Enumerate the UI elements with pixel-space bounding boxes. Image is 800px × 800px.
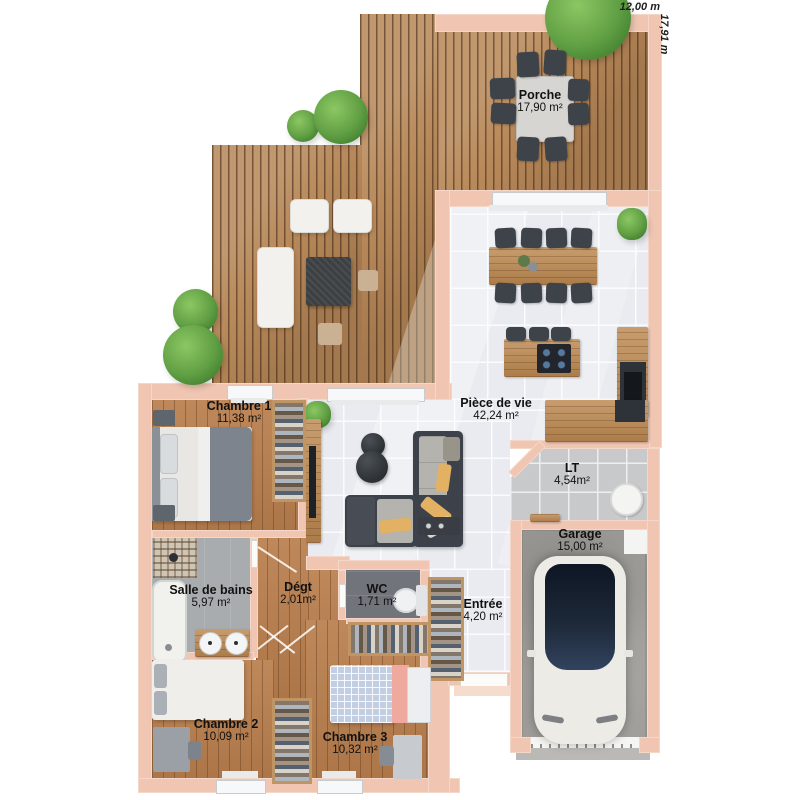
room-name: Chambre 2 <box>194 718 259 731</box>
room-area: 2,01m² <box>280 594 316 607</box>
bed-duvet-checkered <box>330 665 394 723</box>
sofa-throw <box>443 437 460 461</box>
wc-top-wall <box>338 560 430 570</box>
room-area: 42,24 m² <box>460 410 532 423</box>
oven-door <box>624 372 642 400</box>
porch-chair <box>490 78 516 100</box>
room-name: WC <box>358 583 397 596</box>
tree <box>163 325 223 385</box>
sink-faucet <box>208 641 212 645</box>
porch-chair <box>568 79 590 102</box>
east-wall <box>648 190 662 448</box>
dining-chair <box>494 227 516 248</box>
dining-chair <box>521 228 543 249</box>
chambre3-window <box>317 780 363 794</box>
kitchen-sink <box>615 400 645 422</box>
chambre3-wardrobe <box>348 622 434 656</box>
kitchen-plant <box>617 208 647 240</box>
dining-chair <box>546 283 568 304</box>
room-name: Entrée <box>464 598 503 611</box>
nightstand <box>153 410 175 426</box>
toilet-tank <box>416 585 427 616</box>
cooktop <box>537 344 571 373</box>
bar-stool <box>529 327 549 341</box>
dining-chair <box>494 282 516 303</box>
bathtub-faucet <box>165 644 172 651</box>
nightstand <box>153 505 175 521</box>
room-area: 10,09 m² <box>194 731 259 744</box>
room-label-chambre2: Chambre 2 10,09 m² <box>194 718 259 744</box>
room-label-lt: LT 4,54m² <box>554 462 590 488</box>
hall-closet <box>272 698 312 784</box>
car-roof-glass <box>545 564 615 670</box>
tv <box>309 446 316 518</box>
dining-chair <box>570 227 592 248</box>
terrace-side-table <box>358 270 378 291</box>
room-label-porche: Porche 17,90 m² <box>517 89 562 115</box>
room-label-wc: WC 1,71 m² <box>358 583 397 609</box>
room-area: 15,00 m² <box>557 541 602 554</box>
room-name: Chambre 3 <box>323 731 388 744</box>
garage-door-post-left <box>510 737 531 753</box>
porch-chair <box>516 136 539 161</box>
entree-closet <box>428 577 464 681</box>
room-name: Salle de bains <box>169 584 252 597</box>
room-name: Garage <box>557 528 602 541</box>
porch-chair <box>544 136 568 161</box>
living-west-wall <box>435 190 450 400</box>
porch-chair <box>490 102 516 124</box>
lt-east-wall <box>647 448 660 528</box>
coffee-table-round <box>356 451 388 483</box>
bed-sheet-fold <box>198 427 210 521</box>
garage-door-post-right <box>639 737 660 753</box>
door-leaf <box>339 584 346 608</box>
terrace-coffee-table <box>306 257 351 306</box>
table-centerpiece <box>528 262 538 272</box>
front-door <box>460 673 508 687</box>
chambre3-east-wall <box>428 678 450 793</box>
room-label-piece-de-vie: Pièce de vie 42,24 m² <box>460 397 532 423</box>
terrace-sofa <box>257 247 294 328</box>
entree-sideboard <box>418 517 460 535</box>
bar-stool <box>551 327 571 341</box>
desk <box>393 735 422 779</box>
plan-width-dimension: 12,00 m <box>570 1 660 13</box>
west-wall <box>138 383 152 793</box>
porch-chair <box>543 49 567 75</box>
lt-garage-threshold <box>530 514 560 522</box>
room-area: 4,20 m² <box>464 611 503 624</box>
terrace-side-table <box>318 323 342 345</box>
porch-chair <box>516 51 539 77</box>
room-label-degt: Dégt 2,01m² <box>280 581 316 607</box>
shower-drain <box>169 553 178 562</box>
room-name: LT <box>554 462 590 475</box>
room-label-entree: Entrée 4,20 m² <box>464 598 503 624</box>
driveway <box>516 748 650 760</box>
room-label-salle-de-bains: Salle de bains 5,97 m² <box>169 584 252 610</box>
terrace-armchair <box>290 199 329 233</box>
room-name: Chambre 1 <box>207 400 272 413</box>
bed-duvet <box>206 427 252 521</box>
garage-east-wall <box>647 520 660 748</box>
dining-chair <box>546 228 568 249</box>
door-leaf <box>251 540 258 568</box>
window-sill <box>322 771 356 778</box>
room-name: Porche <box>517 89 562 102</box>
tree <box>314 90 368 144</box>
bed-headboard <box>407 667 431 723</box>
garage-recess <box>624 529 648 554</box>
room-label-chambre3: Chambre 3 10,32 m² <box>323 731 388 757</box>
room-label-chambre1: Chambre 1 11,38 m² <box>207 400 272 426</box>
deck-strip <box>360 14 443 384</box>
bed-pillow <box>154 691 167 715</box>
room-name: Pièce de vie <box>460 397 532 410</box>
bed-pillow <box>160 434 178 474</box>
garage-west-wall <box>510 520 522 748</box>
bar-stool <box>506 327 526 341</box>
room-area: 5,97 m² <box>169 597 252 610</box>
washing-machine <box>610 483 643 516</box>
room-label-garage: Garage 15,00 m² <box>557 528 602 554</box>
room-name: Dégt <box>280 581 316 594</box>
porch-chair <box>568 103 590 126</box>
floor-plan: 12,00 m 17,91 m <box>0 0 800 800</box>
room-area: 11,38 m² <box>207 413 272 426</box>
plan-height-dimension: 17,91 m <box>658 14 670 84</box>
car-mirror <box>624 650 633 657</box>
room-area: 4,54m² <box>554 475 590 488</box>
desk <box>153 727 190 772</box>
sofa-ottoman <box>347 497 375 545</box>
dining-chair <box>570 282 592 303</box>
chambre2-window <box>216 780 266 794</box>
sliding-door-sill <box>489 205 608 211</box>
sliding-door-sill <box>331 400 419 405</box>
room-area: 1,71 m² <box>358 596 397 609</box>
chambre1-south-wall <box>152 530 308 538</box>
dining-chair <box>521 283 543 304</box>
car-mirror <box>527 650 536 657</box>
dining-table <box>489 247 597 285</box>
room-area: 17,90 m² <box>517 102 562 115</box>
sink-faucet <box>234 641 238 645</box>
terrace-armchair <box>333 199 372 233</box>
chambre1-closet <box>272 400 306 502</box>
bed-pillow <box>154 664 167 688</box>
front-door-step <box>454 686 512 696</box>
room-area: 10,32 m² <box>323 744 388 757</box>
window-sill <box>222 771 258 778</box>
